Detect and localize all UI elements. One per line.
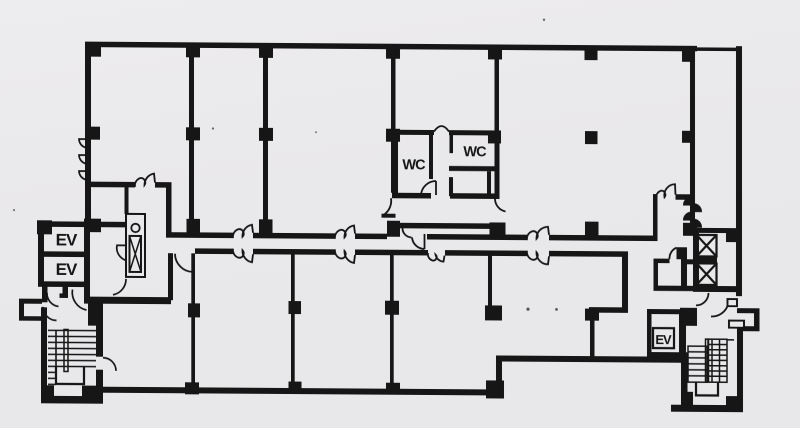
- svg-text:EV: EV: [56, 260, 78, 279]
- svg-text:WC: WC: [402, 157, 426, 173]
- svg-text:EV: EV: [655, 332, 672, 347]
- svg-text:WC: WC: [463, 144, 487, 160]
- svg-text:EV: EV: [56, 230, 78, 249]
